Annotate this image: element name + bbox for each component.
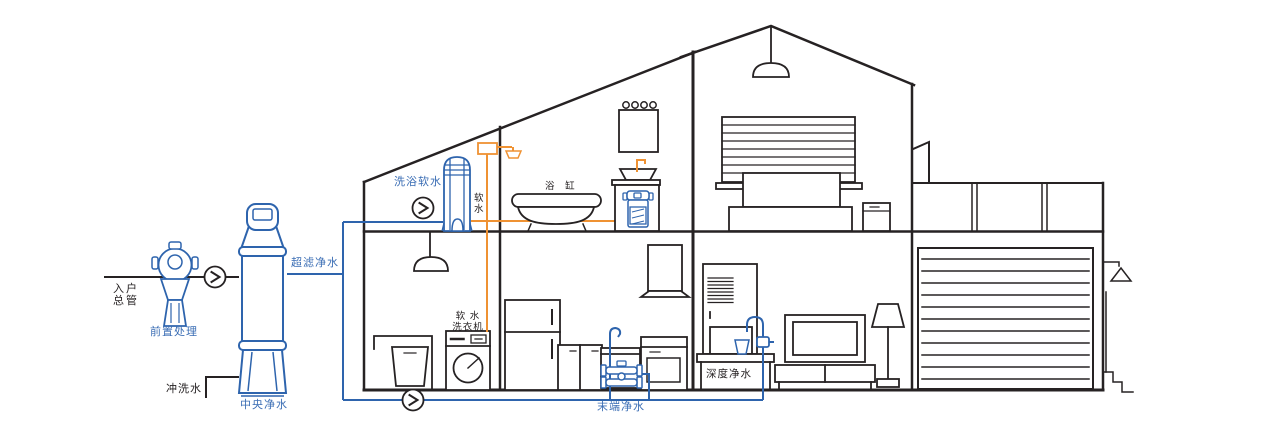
outdoor-lamp-icon: [1103, 262, 1131, 281]
washing-machine: [446, 331, 490, 390]
floor-lamp: [872, 304, 904, 387]
label-inlet-main: 入户 总管: [113, 283, 139, 307]
vanity-heater-device: [623, 191, 653, 227]
flow-arrow-icon: [205, 267, 226, 288]
flow-arrow-icon: [403, 390, 424, 411]
bed: [729, 173, 852, 231]
mirror-lights: [623, 102, 656, 108]
kitchen-cabinets: [558, 345, 602, 390]
house-water-diagram: 入户 总管 前置处理 冲洗水 中央净水 超滤净水 洗浴软水 软 水 浴 缸 软 …: [0, 0, 1280, 434]
pipe-flush-water: [206, 377, 238, 397]
kitchen-faucet: [610, 328, 620, 349]
vanity-mirror: [619, 110, 658, 152]
label-deep-purification: 深度净水: [706, 368, 752, 380]
stove-oven: [641, 337, 687, 390]
bathtub: [512, 194, 601, 231]
range-hood: [641, 245, 689, 297]
tv: [785, 315, 865, 362]
laundry-sink: [374, 336, 432, 390]
label-ultrafiltration: 超滤净水: [291, 257, 339, 269]
nightstand: [863, 203, 890, 231]
flow-arrow-icon: [413, 198, 434, 219]
diagram-canvas: [0, 0, 1280, 434]
label-central-purification: 中央净水: [240, 399, 288, 411]
water-cup: [735, 340, 749, 354]
pendant-lamp-bedroom: [753, 28, 789, 77]
label-soft-water: 软 水: [474, 193, 485, 215]
garage-door: [918, 248, 1093, 389]
label-flush-water: 冲洗水: [166, 383, 202, 395]
central-purifier-device: [239, 204, 286, 396]
label-pre-treatment: 前置处理: [150, 326, 198, 338]
shower-softener-device: [442, 157, 472, 231]
outdoor-steps: [1104, 372, 1133, 392]
label-soft-water-washer: 软 水 洗衣机: [449, 311, 487, 333]
fridge: [505, 300, 560, 390]
tv-stand: [775, 365, 875, 389]
terrace-railing: [913, 183, 1103, 231]
label-bathtub: 浴 缸: [545, 181, 579, 192]
label-terminal-purification: 末端净水: [597, 401, 645, 413]
pendant-lamp-laundry: [414, 233, 448, 271]
label-shower-softening: 洗浴软水: [394, 176, 442, 188]
pre-filter-device: [152, 242, 198, 326]
